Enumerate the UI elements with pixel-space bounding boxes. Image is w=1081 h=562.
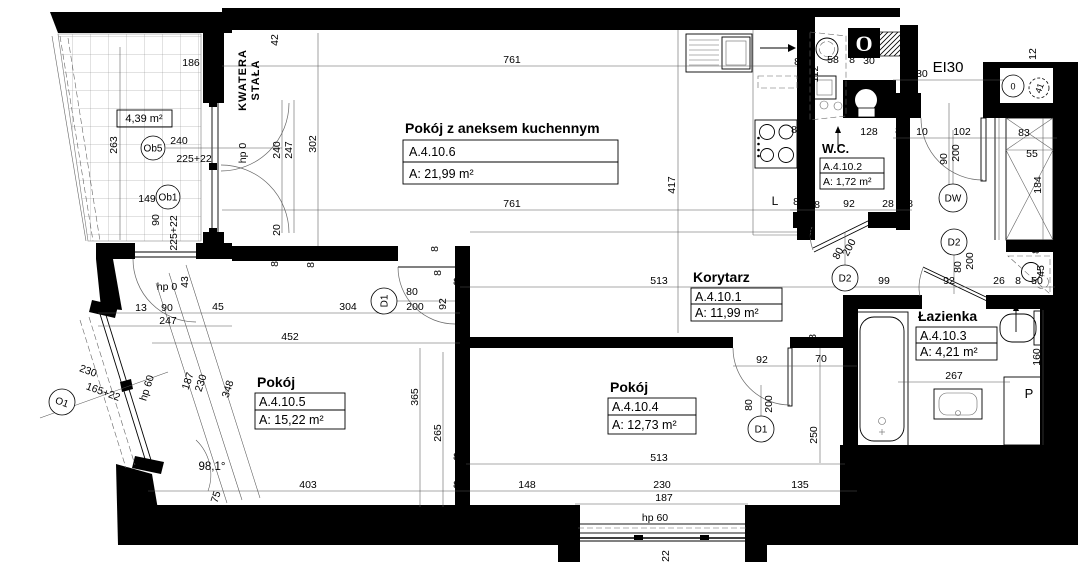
dimension-label: 8 [269,261,281,267]
dimension-label: 12 [983,69,995,81]
room-name: Korytarz [693,269,750,285]
dimension-label: 8 [460,328,466,340]
dimension-label: 8 [793,196,799,208]
room-id: A.4.10.6 [409,145,456,159]
dimension-label: 250 [808,426,820,444]
dimension-label: 70 [815,353,827,365]
dimension-label: 43 [179,276,191,288]
dimension-label: 20 [271,224,283,236]
dimension-label: 513 [650,275,668,287]
dimension-label: 200 [964,252,976,270]
dimension-label: 8 [453,276,459,288]
room-area: A: 15,22 m² [259,413,324,427]
dimension-label: 135 [791,479,809,491]
dimension-label: 8 [895,125,901,137]
dimension-label: 98,1° [199,461,226,473]
dimension-label: 112 [809,65,821,82]
room-area: A: 11,99 m² [695,306,759,320]
dimension-label: 761 [503,198,521,210]
room-area: A: 12,73 m² [612,418,677,432]
marker-ob5: Ob5 [141,136,165,160]
dimension-label: 247 [283,141,295,159]
dimension-label: 417 [666,176,678,194]
marker-label: D2 [948,238,961,249]
marker-0: 0 [1002,75,1024,97]
marker-d2: D2 [832,265,858,291]
dimension-label: 200 [406,301,424,313]
room-id: A.4.10.2 [823,161,862,173]
marker-label: 0 [1010,82,1015,92]
dimension-label: 200 [763,395,775,413]
dimension-label: 26 [993,275,1005,287]
dimension-label: L [772,194,779,208]
dimension-label: 80 [952,261,964,273]
dimension-label: 452 [281,331,299,343]
dimension-label: 149 [138,193,156,205]
dimension-label: 55 [1026,148,1038,160]
dimension-label: 8 [814,199,820,211]
dimension-label: 513 [650,452,668,464]
dimension-label: 240 [271,141,283,159]
room-name: Pokój [610,379,648,395]
dimension-label: 8 [791,124,797,136]
dimension-label: 8 [453,451,459,463]
dimension-label: hp 60 [642,512,668,524]
room-name: Łazienka [918,308,977,324]
dimension-label: 46 [210,60,222,72]
dimension-label: 102 [953,126,971,138]
dimension-label: 8 [432,270,444,276]
dimension-label: 8 [1033,303,1045,309]
room-id: A.4.10.1 [695,290,742,304]
dimension-label: 22 [660,550,672,562]
dimension-label: 8 [797,123,809,129]
dimension-label: 263 [108,136,120,154]
dimension-label: 90 [161,302,173,314]
room-area: A: 4,21 m² [920,345,978,359]
marker-label: D1 [755,425,768,436]
marker-dw: DW [939,184,967,212]
dimension-label: 225+22 [176,153,211,165]
dimension-label: 8 [1030,248,1042,254]
marker-label: Ob5 [144,144,163,155]
floor-plan: Pokój z aneksem kuchennym A.4.10.6 A: 21… [0,0,1081,562]
dimension-label: 92 [943,275,955,287]
marker-41: 41 [1029,78,1049,98]
dimension-label: 200 [950,144,962,162]
dimension-label: 58 [827,54,839,66]
dimension-label: 8 [429,246,441,252]
dimension-label: 186 [182,57,200,69]
dimension-label: 403 [299,479,317,491]
room-name: Pokój z aneksem kuchennym [405,120,600,136]
hatched-block [878,32,902,56]
dimension-label: P [1025,386,1034,401]
marker-label: DW [945,194,962,205]
dimension-label: 80 [743,399,755,411]
dimension-label: 42 [269,34,281,46]
dimension-label: 365 [409,388,421,406]
room-id: A.4.10.5 [259,395,306,409]
dimension-label: 92 [843,198,855,210]
dimension-label: 10 [916,126,928,138]
dimension-label: 28 [882,198,894,210]
marker-label: D1 [380,294,391,307]
dimension-label: 247 [159,315,177,327]
dimension-label: 12 [1027,48,1039,60]
dimension-label: 304 [339,301,357,313]
entrance-fire-rating: EI30 [933,59,964,76]
dimension-label: 92 [437,298,449,310]
dimension-label: 45 [1035,265,1047,277]
marker-d1: D1 [371,288,397,314]
room-name: W.C. [822,142,849,156]
dimension-label: 230 [653,479,671,491]
dimension-label: 8 [794,56,800,68]
room-id: A.4.10.4 [612,400,659,414]
marker-d2: D2 [941,229,967,255]
room-id: A.4.10.3 [920,329,967,343]
dimension-label: 99 [878,275,890,287]
dimension-label: 8 [807,334,819,340]
dimension-label: 90 [938,153,950,165]
room-area: A: 21,99 m² [409,167,474,181]
dimension-label: 8 [453,479,459,491]
dimension-label: 92 [756,354,768,366]
dimension-label: 8 [1015,275,1021,287]
kwatera-label-line2: STAŁA [250,60,262,101]
kwatera-label-line1: KWATERA [237,49,249,111]
dimension-label: 30 [863,55,875,67]
dimension-label: 265 [432,424,444,442]
dimension-label: 8 [849,54,855,66]
dimension-label: 83 [1018,127,1030,139]
dimension-label: 160 [1031,348,1043,366]
room-name: Pokój [257,374,295,390]
floor-plan-drawing: Pokój z aneksem kuchennym A.4.10.6 A: 21… [0,0,1081,562]
vent-symbol: O [855,31,872,56]
marker-ob1: Ob1 [156,185,180,209]
dimension-label: 225+22 [168,215,180,250]
dimension-label: 148 [518,479,536,491]
dimension-label: 8 [907,198,913,210]
dimension-label: hp 0 [237,143,249,164]
dimension-label: 267 [945,370,963,382]
dimension-label: 302 [307,135,319,153]
dimension-label: 128 [860,126,878,138]
dimension-label: 8 [305,262,317,268]
dimension-label: 184 [1032,176,1044,194]
dimension-label: 187 [655,492,673,504]
dimension-label: 240 [170,135,188,147]
marker-label: Ob1 [159,193,178,204]
dimension-label: hp 0 [157,281,178,293]
dimension-label: 45 [212,301,224,313]
dimension-label: 761 [503,54,521,66]
balcony-area: 4,39 m² [125,113,163,125]
dimension-label: 130 [910,68,928,80]
marker-d1: D1 [748,416,774,442]
dimension-label: 90 [150,214,162,226]
marker-label: D2 [839,274,852,285]
dimension-label: 13 [135,302,147,314]
dimension-label: 80 [406,286,418,298]
room-area: A: 1,72 m² [823,176,872,188]
marker-o1: O1 [49,389,75,415]
